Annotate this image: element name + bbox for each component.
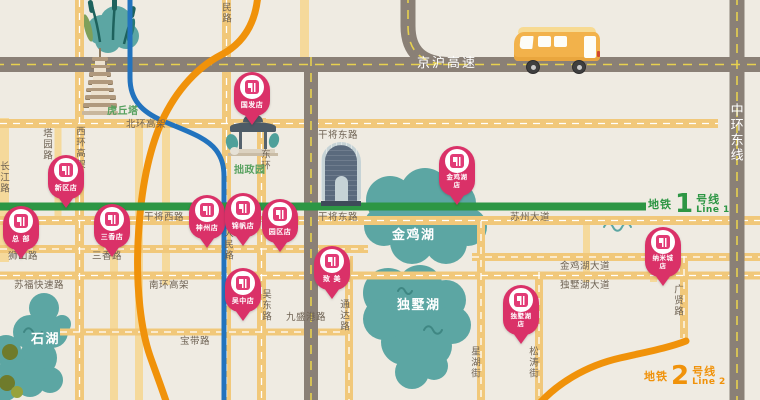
brand-logo-icon xyxy=(320,249,344,273)
store-pin-园区店[interactable]: 园区店 xyxy=(262,199,298,252)
brand-logo-icon xyxy=(9,209,33,233)
metro-line-2-number: 2 xyxy=(671,364,689,388)
bus-icon xyxy=(514,27,602,72)
store-pin-金鸡湖店[interactable]: 金鸡湖店 xyxy=(439,146,475,205)
store-pin-致美[interactable]: 致 美 xyxy=(314,246,350,299)
lake-label: 石湖 xyxy=(31,333,60,347)
metro-line-2-en: Line 2 xyxy=(692,377,726,387)
road-label: 干将东路 xyxy=(318,213,358,223)
brand-logo-icon xyxy=(195,198,219,222)
road-label: 干将东路 xyxy=(318,131,358,141)
road-label: 北环高架 xyxy=(126,120,166,130)
road-label: 吴东路 xyxy=(260,289,270,322)
highway-label: 中环东线 xyxy=(728,103,742,163)
metro-line-2-suffix: 号线 xyxy=(692,366,726,377)
store-pin-label: 独墅湖店 xyxy=(503,312,539,328)
store-pin-label: 纳米城店 xyxy=(645,254,681,270)
metro-line-1-badge: 地铁 1 号线 Line 1 xyxy=(648,192,730,216)
store-pin-label: 吴中店 xyxy=(225,297,261,305)
brand-logo-icon xyxy=(268,202,292,226)
brand-logo-icon xyxy=(445,149,469,173)
metro-line-1-en: Line 1 xyxy=(696,205,730,215)
road-label: 南环高架 xyxy=(149,281,189,291)
suzhou-store-map: 地铁 1 号线 Line 1 地铁 2 号线 Line 2 京沪高速中环东线北环… xyxy=(0,0,760,400)
metro-line-1-prefix: 地铁 xyxy=(648,196,672,212)
brand-logo-icon xyxy=(231,271,255,295)
store-pin-label: 新区店 xyxy=(48,184,84,192)
gate-of-the-orient-icon xyxy=(321,140,361,206)
brand-logo-icon xyxy=(240,75,264,99)
lake-label: 独墅湖 xyxy=(397,299,441,313)
store-pin-label: 总 部 xyxy=(3,235,39,243)
road-label: 九盛港路 xyxy=(286,313,326,323)
metro-line-1-suffix: 号线 xyxy=(696,194,730,205)
lake-label: 金鸡湖 xyxy=(392,229,436,243)
store-pin-神州店[interactable]: 神州店 xyxy=(189,195,225,248)
store-pin-label: 园区店 xyxy=(262,228,298,236)
brand-logo-icon xyxy=(231,196,255,220)
brand-logo-icon xyxy=(54,158,78,182)
lake-dushu-shape xyxy=(363,265,471,389)
road-label: 长江路 xyxy=(0,161,8,194)
landmark-label: 拙政园 xyxy=(234,166,266,177)
landmark-label: 虎丘塔 xyxy=(107,107,139,118)
metro-line-2-badge: 地铁 2 号线 Line 2 xyxy=(644,364,726,388)
store-pin-总部[interactable]: 总 部 xyxy=(3,206,39,259)
store-pin-国发店[interactable]: 国发店 xyxy=(234,72,270,125)
store-pin-label: 国发店 xyxy=(234,101,270,109)
brand-logo-icon xyxy=(100,207,124,231)
road-label: 独墅湖大道 xyxy=(560,281,610,291)
huqiu-pagoda-icon xyxy=(82,48,118,115)
store-pin-label: 神州店 xyxy=(189,224,225,232)
road-label: 金鸡湖大道 xyxy=(560,262,610,272)
metro-line-1-number: 1 xyxy=(675,192,693,216)
road-label: 星湖街 xyxy=(469,346,479,379)
store-pin-label: 致 美 xyxy=(314,275,350,283)
store-pin-新区店[interactable]: 新区店 xyxy=(48,155,84,208)
store-pin-label: 三香店 xyxy=(94,233,130,241)
store-pin-label: 金鸡湖店 xyxy=(439,173,475,189)
road-label: 宝带路 xyxy=(180,337,210,347)
store-pin-三香店[interactable]: 三香店 xyxy=(94,204,130,257)
road-label: 干将西路 xyxy=(144,213,184,223)
road-label: 苏福快速路 xyxy=(14,281,64,291)
road-label: 苏州大道 xyxy=(510,213,550,223)
road-label: 民路 xyxy=(220,2,230,24)
store-pin-纳米城店[interactable]: 纳米城店 xyxy=(645,227,681,286)
road-label: 广贤路 xyxy=(672,284,682,317)
highway-label: 京沪高速 xyxy=(417,57,477,71)
brand-logo-icon xyxy=(651,230,675,254)
road-label: 松涛街 xyxy=(527,346,537,379)
store-pin-吴中店[interactable]: 吴中店 xyxy=(225,268,261,321)
road-label: 通达路 xyxy=(338,299,348,332)
brand-logo-icon xyxy=(509,288,533,312)
store-pin-独墅湖店[interactable]: 独墅湖店 xyxy=(503,285,539,344)
store-pin-label: 锦帆店 xyxy=(225,222,261,230)
store-pin-锦帆店[interactable]: 锦帆店 xyxy=(225,193,261,246)
metro-line-2-prefix: 地铁 xyxy=(644,368,668,384)
